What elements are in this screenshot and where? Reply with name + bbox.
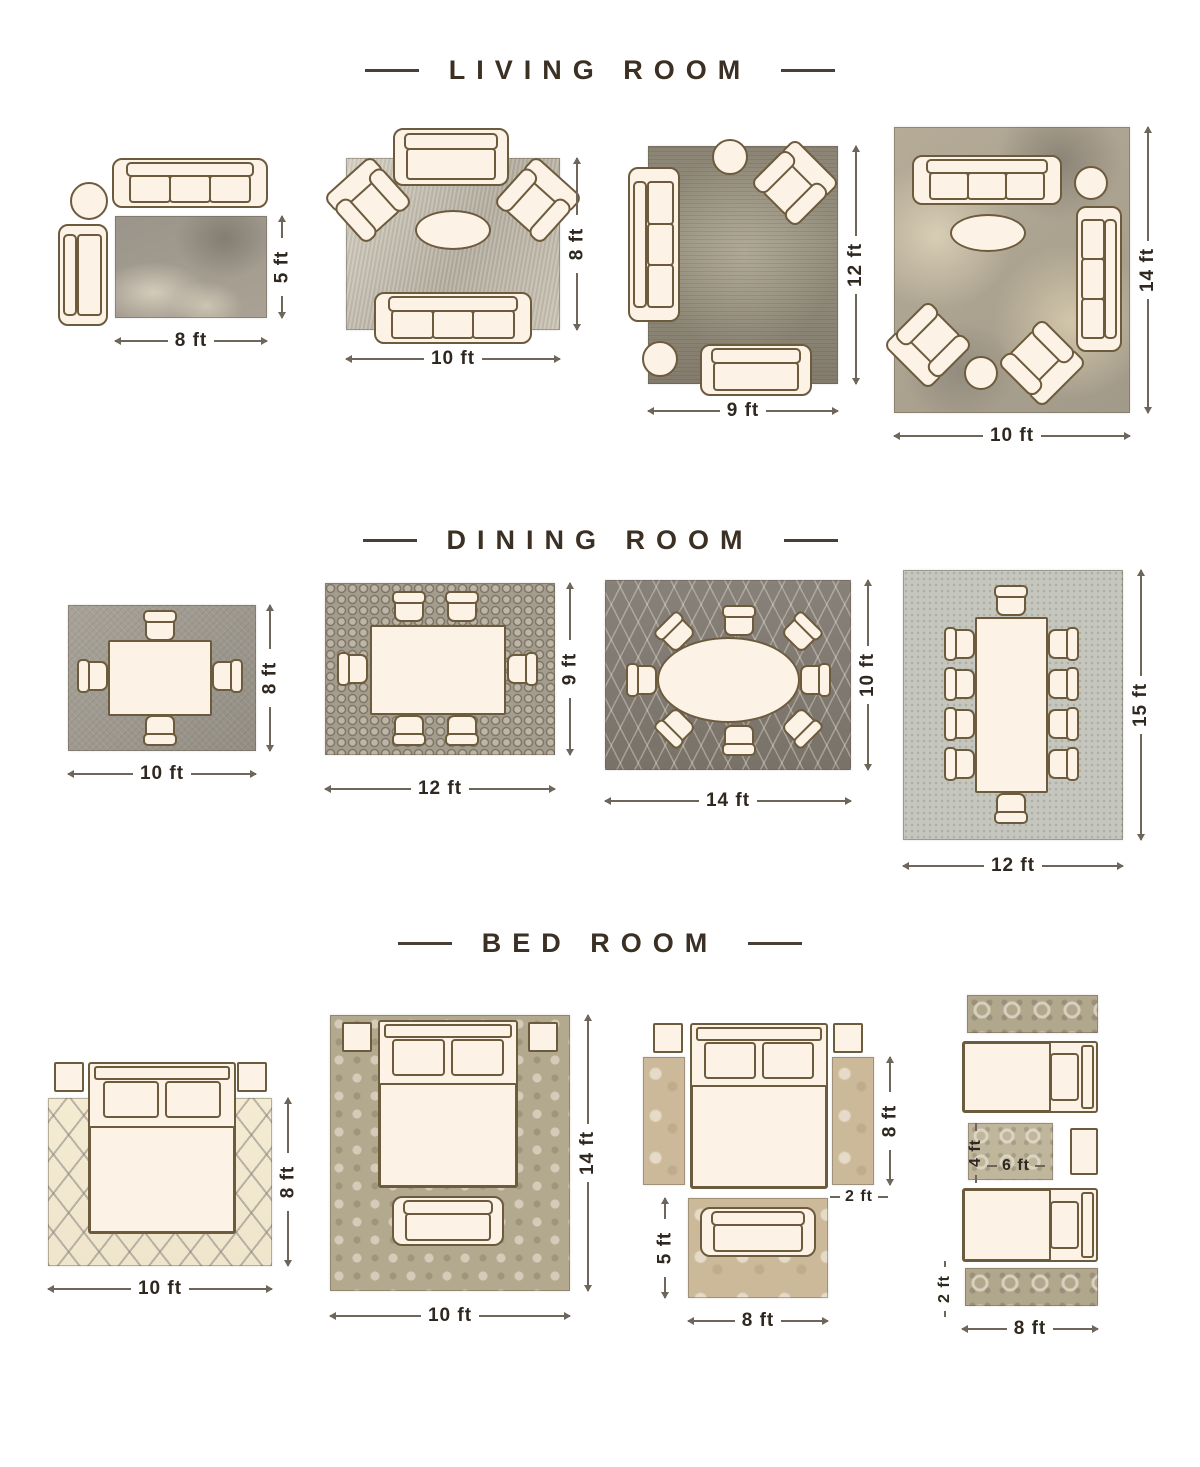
chair-back (445, 591, 479, 604)
dim-line (1053, 1328, 1098, 1330)
dining-chair (507, 654, 533, 684)
dim-line (962, 1328, 1007, 1330)
layout-living-8x5: 8 ft 5 ft (48, 128, 298, 353)
dim-line (482, 358, 560, 360)
pillow (1050, 1053, 1079, 1101)
heading-dash-right (781, 69, 835, 72)
dim-height: 5 ft (271, 216, 293, 318)
dim-line (664, 1277, 666, 1298)
dim-line (469, 788, 555, 790)
dining-chair (145, 615, 175, 641)
dining-chair (949, 709, 975, 739)
dim-line (576, 158, 578, 215)
dining-table (370, 625, 506, 715)
blanket (963, 1189, 1051, 1261)
dim-label: 9 ft (727, 400, 760, 422)
twin-bed (962, 1041, 1098, 1113)
dim-label: 9 ft (559, 653, 581, 686)
dim-line (889, 1150, 891, 1185)
dim-height: 9 ft (559, 583, 581, 755)
dim-line (287, 1211, 289, 1266)
dim-width: 10 ft (48, 1278, 272, 1300)
sofa-cushions (713, 362, 799, 391)
dim-label: 2 ft (936, 1275, 954, 1303)
layout-living-9x12: 9 ft 12 ft (615, 130, 875, 420)
dim-width: 9 ft (648, 400, 838, 422)
dim-line (867, 580, 869, 646)
runner-rug (967, 995, 1098, 1033)
bench-loveseat (700, 1207, 816, 1257)
heading-dash-left (398, 942, 452, 945)
dim-label: 2 ft (845, 1188, 873, 1206)
blanket (379, 1083, 517, 1187)
dim-line (330, 1315, 421, 1317)
dim-line (1035, 1165, 1045, 1167)
dim-line (48, 1288, 131, 1290)
dim-label: 8 ft (566, 228, 588, 261)
layout-bedroom-10x8: 8 ft 10 ft (35, 1045, 305, 1295)
dim-width: 12 ft (903, 855, 1123, 877)
bed (378, 1020, 518, 1188)
dim-label: 12 ft (418, 778, 462, 800)
dim-label: 8 ft (879, 1105, 901, 1138)
dim-label: 10 ft (428, 1305, 472, 1327)
dim-front-rug-height: 5 ft (654, 1198, 676, 1298)
loveseat (700, 344, 812, 396)
dim-line (867, 704, 869, 770)
dim-height: 14 ft (577, 1015, 599, 1291)
layout-dining-10x8: 10 ft 8 ft (55, 590, 285, 780)
dim-label: 5 ft (271, 251, 293, 284)
section-heading-bed-room: BED ROOM (0, 928, 1200, 959)
headboard (384, 1024, 512, 1038)
coffee-table-oval (415, 210, 491, 250)
dim-width: 10 ft (68, 763, 256, 785)
dim-line (325, 788, 411, 790)
dim-line (1041, 435, 1130, 437)
dim-label: 14 ft (706, 790, 750, 812)
chair-back (143, 733, 177, 746)
settee-vertical (58, 224, 108, 326)
dim-center-rug-height: 4 ft (965, 1123, 987, 1183)
layout-bedroom-runners: 8 ft 2 ft 5 ft 8 ft (630, 1008, 910, 1328)
pillow (165, 1081, 221, 1118)
headboard (1081, 1192, 1094, 1258)
dim-label: 12 ft (845, 243, 867, 287)
sofa-three-seat (374, 292, 532, 344)
runner-rug (965, 1268, 1098, 1306)
layout-living-10x8: 10 ft 8 ft (330, 120, 590, 365)
heading-dash-left (365, 69, 419, 72)
dim-label: 10 ft (140, 763, 184, 785)
heading-dash-right (748, 942, 802, 945)
dim-width: 10 ft (346, 348, 560, 370)
dim-runner-length: 8 ft (879, 1057, 901, 1185)
pillow (704, 1042, 756, 1079)
dim-line (189, 1288, 272, 1290)
dim-height: 14 ft (1137, 127, 1159, 413)
heading-dash-right (784, 539, 838, 542)
chair-back (722, 605, 756, 618)
dining-chair (447, 596, 477, 622)
sofa-three-seat (912, 155, 1062, 205)
section-title: LIVING ROOM (449, 55, 752, 86)
dim-line (346, 358, 424, 360)
chair-back (1066, 707, 1079, 741)
dining-chair (949, 749, 975, 779)
pillow (392, 1039, 445, 1076)
dim-label: 10 ft (431, 348, 475, 370)
dim-height: 8 ft (259, 605, 281, 751)
dim-line (855, 146, 857, 236)
dim-line (944, 1311, 946, 1317)
dim-line (1140, 570, 1142, 676)
layout-living-10x14: 10 ft 14 ft (880, 110, 1170, 440)
chair-back (143, 610, 177, 623)
dim-label: 8 ft (1014, 1318, 1047, 1340)
chair-back (392, 591, 426, 604)
dim-width: 10 ft (894, 425, 1130, 447)
section-title: DINING ROOM (447, 525, 754, 556)
dim-label: 12 ft (991, 855, 1035, 877)
dim-label: 14 ft (577, 1131, 599, 1175)
dim-label: 8 ft (742, 1310, 775, 1332)
chair-back (392, 733, 426, 746)
side-table-round (70, 182, 108, 220)
dim-line (281, 216, 283, 238)
chair-back (1066, 667, 1079, 701)
dining-chair (82, 661, 108, 691)
dim-line (664, 1198, 666, 1219)
bed (690, 1023, 828, 1189)
dim-height: 12 ft (845, 146, 867, 384)
dim-line (115, 340, 168, 342)
nightstand (833, 1023, 863, 1053)
dim-line (576, 273, 578, 330)
chair-back (994, 585, 1028, 598)
pillow (762, 1042, 814, 1079)
layout-dining-14x10: 14 ft 10 ft (590, 565, 880, 800)
dining-chair (212, 661, 238, 691)
dim-line (944, 1261, 946, 1267)
chair-back (626, 663, 639, 697)
dining-chair (145, 715, 175, 741)
dining-chair (724, 725, 754, 751)
dim-line (903, 865, 984, 867)
sofa-cushions (405, 1213, 491, 1241)
dim-line (648, 410, 720, 412)
sofa-three-seat-vertical (628, 167, 680, 322)
layout-bedroom-10x14: 14 ft 10 ft (315, 1000, 605, 1320)
sofa-three-seat (112, 158, 268, 208)
side-table-round (964, 356, 998, 390)
dining-chair (949, 629, 975, 659)
sofa-cushions (129, 175, 251, 203)
runner-rug (832, 1057, 874, 1185)
dining-chair (800, 665, 826, 695)
dim-center-rug-width: 6 ft (987, 1157, 1057, 1175)
dim-label: 15 ft (1130, 683, 1152, 727)
dining-table (108, 640, 212, 716)
dining-chair (996, 590, 1026, 616)
side-table-round (712, 139, 748, 175)
dim-line (975, 1175, 977, 1183)
chair-back (445, 733, 479, 746)
dining-chair (631, 665, 657, 695)
nightstand (54, 1062, 84, 1092)
dim-line (688, 1320, 735, 1322)
dim-line (569, 583, 571, 640)
dim-runner-width: 2 ft (830, 1188, 892, 1206)
dim-runner-width: 2 ft (934, 1261, 956, 1317)
side-table-round (1074, 166, 1108, 200)
dim-line (68, 773, 133, 775)
dim-line (781, 1320, 828, 1322)
dim-line (1042, 865, 1123, 867)
dim-line (878, 1196, 888, 1198)
loveseat (393, 128, 509, 186)
dim-width: 8 ft (688, 1310, 828, 1332)
coffee-table-oval (950, 214, 1026, 252)
dim-height: 8 ft (566, 158, 588, 330)
nightstand (1070, 1128, 1098, 1175)
dim-line (757, 800, 851, 802)
headboard (94, 1066, 230, 1080)
dining-chair (949, 669, 975, 699)
dining-chair (1048, 669, 1074, 699)
section-title: BED ROOM (482, 928, 719, 959)
dim-line (889, 1057, 891, 1092)
dining-table (975, 617, 1048, 793)
dim-line (587, 1182, 589, 1291)
dim-width: 10 ft (330, 1305, 570, 1327)
dim-line (287, 1098, 289, 1153)
dim-label: 10 ft (990, 425, 1034, 447)
dim-line (766, 410, 838, 412)
chair-back (77, 659, 90, 693)
sofa-three-seat-vertical (1076, 206, 1122, 352)
dim-height: 15 ft (1130, 570, 1152, 840)
sofa-cushions (77, 234, 103, 316)
dim-label: 8 ft (277, 1166, 299, 1199)
dim-line (894, 435, 983, 437)
dim-label: 14 ft (1137, 248, 1159, 292)
dim-label: 8 ft (175, 330, 208, 352)
chair-back (1066, 747, 1079, 781)
chair-back (944, 747, 957, 781)
pillow (103, 1081, 159, 1118)
chair-back (944, 667, 957, 701)
dim-line (830, 1196, 840, 1198)
dim-label: 8 ft (259, 662, 281, 695)
dining-chair (1048, 709, 1074, 739)
dim-label: 5 ft (654, 1232, 676, 1265)
nightstand (237, 1062, 267, 1092)
chair-back (337, 652, 350, 686)
dining-chair (447, 715, 477, 741)
sofa-cushions (713, 1224, 803, 1252)
chair-back (722, 743, 756, 756)
dim-label: 4 ft (967, 1139, 985, 1167)
chair-back (944, 707, 957, 741)
sofa-cushions (1081, 219, 1105, 338)
sofa-cushions (406, 148, 496, 180)
pillow (1050, 1201, 1079, 1250)
dim-line (605, 800, 699, 802)
nightstand (342, 1022, 372, 1052)
nightstand (528, 1022, 558, 1052)
twin-bed (962, 1188, 1098, 1262)
layout-bedroom-twin: 4 ft 6 ft 2 ft 8 ft (925, 985, 1160, 1330)
dim-label: 10 ft (138, 1278, 182, 1300)
dining-chair (394, 715, 424, 741)
dim-width: 8 ft (115, 330, 267, 352)
section-heading-dining-room: DINING ROOM (0, 525, 1200, 556)
chair-back (525, 652, 538, 686)
dim-height: 10 ft (857, 580, 879, 770)
dim-line (214, 340, 267, 342)
dim-line (191, 773, 256, 775)
dim-height: 8 ft (277, 1098, 299, 1266)
rug-size-guide: LIVING ROOM 8 ft 5 ft (0, 0, 1200, 1467)
dim-line (1147, 299, 1149, 413)
dim-label: 6 ft (1002, 1157, 1030, 1175)
dim-line (281, 296, 283, 318)
layout-dining-12x9: 12 ft 9 ft (310, 570, 585, 785)
pillow (451, 1039, 504, 1076)
dining-chair (996, 793, 1026, 819)
dim-line (855, 294, 857, 384)
chair-back (944, 627, 957, 661)
dim-line (479, 1315, 570, 1317)
dining-chair (1048, 629, 1074, 659)
dim-line (1147, 127, 1149, 241)
chair-back (1066, 627, 1079, 661)
dining-chair (342, 654, 368, 684)
dim-width: 12 ft (325, 778, 555, 800)
headboard (696, 1027, 822, 1041)
dim-line (269, 707, 271, 751)
blanket (691, 1085, 827, 1188)
dim-line (1140, 734, 1142, 840)
chair-back (994, 811, 1028, 824)
section-heading-living-room: LIVING ROOM (0, 55, 1200, 86)
sofa-cushions (647, 181, 674, 308)
dining-chair (724, 610, 754, 636)
dim-line (569, 698, 571, 755)
layout-dining-12x15: 12 ft 15 ft (888, 555, 1163, 870)
dim-width: 14 ft (605, 790, 851, 812)
dim-label: 10 ft (857, 653, 879, 697)
dim-line (987, 1165, 997, 1167)
chair-back (818, 663, 831, 697)
heading-dash-left (363, 539, 417, 542)
dim-line (269, 605, 271, 649)
sofa-cushions (391, 310, 514, 339)
dining-chair (394, 596, 424, 622)
bed (88, 1062, 236, 1234)
rug (115, 216, 267, 318)
headboard (1081, 1045, 1094, 1109)
dim-line (587, 1015, 589, 1124)
dim-line (975, 1123, 977, 1131)
dining-chair (1048, 749, 1074, 779)
blanket (963, 1042, 1051, 1112)
runner-rug (643, 1057, 685, 1185)
dining-table-oval (657, 637, 800, 723)
bench-loveseat (392, 1196, 504, 1246)
blanket (89, 1126, 235, 1233)
nightstand (653, 1023, 683, 1053)
dim-width: 8 ft (962, 1318, 1098, 1340)
sofa-cushions (929, 172, 1046, 200)
chair-back (230, 659, 243, 693)
side-table-round (642, 341, 678, 377)
